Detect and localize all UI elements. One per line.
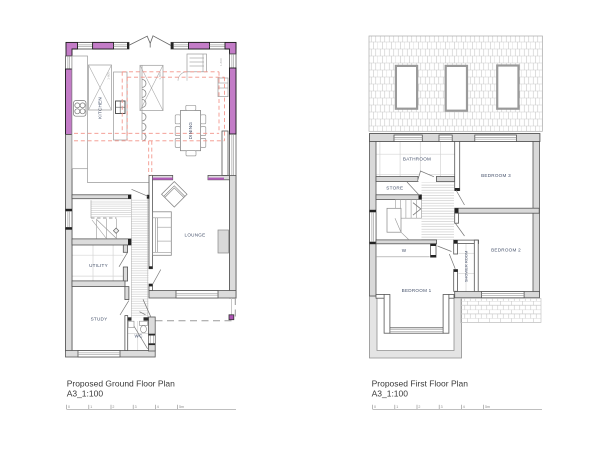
svg-text:BEDROOM 1: BEDROOM 1 bbox=[402, 288, 432, 293]
svg-text:UTILITY: UTILITY bbox=[89, 263, 108, 268]
svg-text:LOUNGE: LOUNGE bbox=[185, 232, 206, 237]
svg-text:3: 3 bbox=[441, 405, 443, 409]
svg-text:1-800: 1-800 bbox=[158, 72, 162, 80]
svg-text:BATHROOM: BATHROOM bbox=[403, 157, 431, 162]
svg-text:BEDROOM 3: BEDROOM 3 bbox=[481, 173, 511, 178]
svg-text:STORE: STORE bbox=[386, 185, 403, 190]
svg-text:STUDY: STUDY bbox=[91, 317, 108, 322]
svg-text:4: 4 bbox=[463, 405, 465, 409]
svg-text:A3_1:100: A3_1:100 bbox=[372, 388, 409, 398]
svg-text:A3_1:100: A3_1:100 bbox=[67, 388, 104, 398]
svg-text:BEDROOM 2: BEDROOM 2 bbox=[491, 248, 521, 253]
svg-text:SHOWER ROOM: SHOWER ROOM bbox=[464, 251, 469, 283]
svg-text:1: 1 bbox=[396, 405, 398, 409]
svg-text:1-800: 1-800 bbox=[107, 72, 111, 80]
svg-text:1: 1 bbox=[90, 405, 92, 409]
svg-text:Proposed First Floor Plan: Proposed First Floor Plan bbox=[372, 379, 469, 389]
svg-text:0: 0 bbox=[374, 405, 376, 409]
svg-text:1-800: 1-800 bbox=[219, 58, 223, 66]
svg-text:0: 0 bbox=[68, 405, 70, 409]
svg-text:5m: 5m bbox=[179, 405, 184, 409]
svg-text:DINING: DINING bbox=[188, 122, 193, 140]
svg-text:3: 3 bbox=[135, 405, 137, 409]
svg-text:KITCHEN: KITCHEN bbox=[98, 97, 103, 119]
svg-text:WC: WC bbox=[135, 334, 144, 339]
svg-text:2: 2 bbox=[112, 405, 114, 409]
svg-text:5m: 5m bbox=[485, 405, 490, 409]
svg-text:2: 2 bbox=[418, 405, 420, 409]
svg-text:W: W bbox=[402, 248, 407, 253]
svg-text:Proposed Ground Floor Plan: Proposed Ground Floor Plan bbox=[67, 379, 175, 389]
svg-text:4: 4 bbox=[157, 405, 159, 409]
